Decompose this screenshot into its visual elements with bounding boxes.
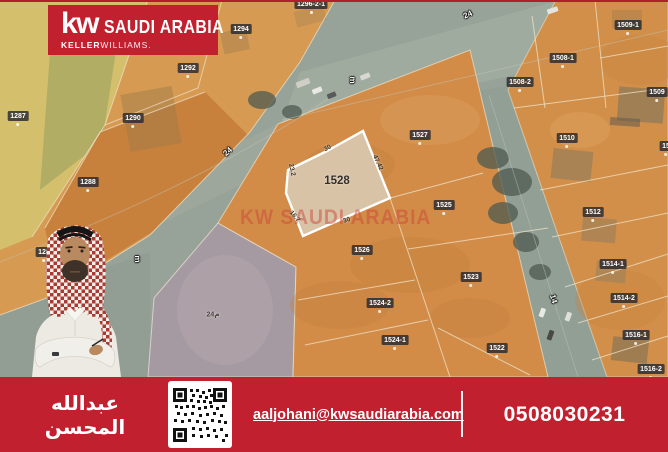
kw-logo: kw SAUDI ARABIA KELLERWILLIAMS. xyxy=(48,5,218,55)
email-link[interactable]: aaljohani@kwsaudiarabia.com xyxy=(253,407,464,423)
plot-label: 1525 xyxy=(434,200,455,210)
plot-label: 1294 xyxy=(231,24,252,34)
logo-keller-text: KELLER xyxy=(61,40,100,50)
plot-label: 1510 xyxy=(557,133,578,143)
logo-kw-text: kw xyxy=(61,9,98,39)
plot-label: 1526 xyxy=(352,245,373,255)
plot-label: 1509 xyxy=(647,87,668,97)
satellite-map: KW SAUDI ARABIA 1296-2-1 1294 1292 1290 … xyxy=(0,0,668,377)
agent-name: عبدالله المحسن xyxy=(10,391,160,439)
top-red-strip xyxy=(0,0,668,2)
plot-label: 1509-1 xyxy=(615,20,642,30)
plot-label: 1508-2 xyxy=(507,77,534,87)
plot-label: 1524-1 xyxy=(382,335,409,345)
dimension-label: 23.2 xyxy=(287,163,296,177)
plot-label: 1514-1 xyxy=(600,259,627,269)
map-watermark: KW SAUDI ARABIA xyxy=(240,206,424,230)
plot-label: 1292 xyxy=(178,63,199,73)
plot-label: 1512 xyxy=(583,207,604,217)
plot-label: 1290 xyxy=(123,113,144,123)
street-label: m xyxy=(348,76,356,83)
plot-label: 1524-2 xyxy=(367,298,394,308)
agent-photo xyxy=(8,209,153,377)
plot-label: 1288 xyxy=(78,177,99,187)
logo-williams-text: WILLIAMS. xyxy=(100,40,151,50)
real-estate-flyer: KW SAUDI ARABIA 1296-2-1 1294 1292 1290 … xyxy=(0,0,668,452)
qr-pattern xyxy=(172,387,228,443)
plot-label: 1287 xyxy=(8,111,29,121)
footer-divider xyxy=(461,391,463,437)
plot-label: 1516-1 xyxy=(623,330,650,340)
plot-label: 1508-1 xyxy=(550,53,577,63)
highlighted-plot-label: 1528 xyxy=(322,174,353,189)
qr-code xyxy=(168,381,232,448)
plot-label: 1523 xyxy=(461,272,482,282)
plot-label: 1522 xyxy=(487,343,508,353)
plot-label: 1514-2 xyxy=(611,293,638,303)
street-label: 14 xyxy=(548,294,558,305)
street-label: 24م xyxy=(207,312,220,319)
contact-bar: عبدالله المحسن aaljohani@kwsaudiarabia.c… xyxy=(0,377,668,452)
phone-number[interactable]: 0508030231 xyxy=(472,403,657,427)
plot-label: 1516-2 xyxy=(638,364,665,374)
street-label: m xyxy=(133,255,141,262)
logo-region-text: SAUDI ARABIA xyxy=(104,17,224,38)
plot-label: 15 xyxy=(660,141,668,151)
plot-label: 1527 xyxy=(410,130,431,140)
